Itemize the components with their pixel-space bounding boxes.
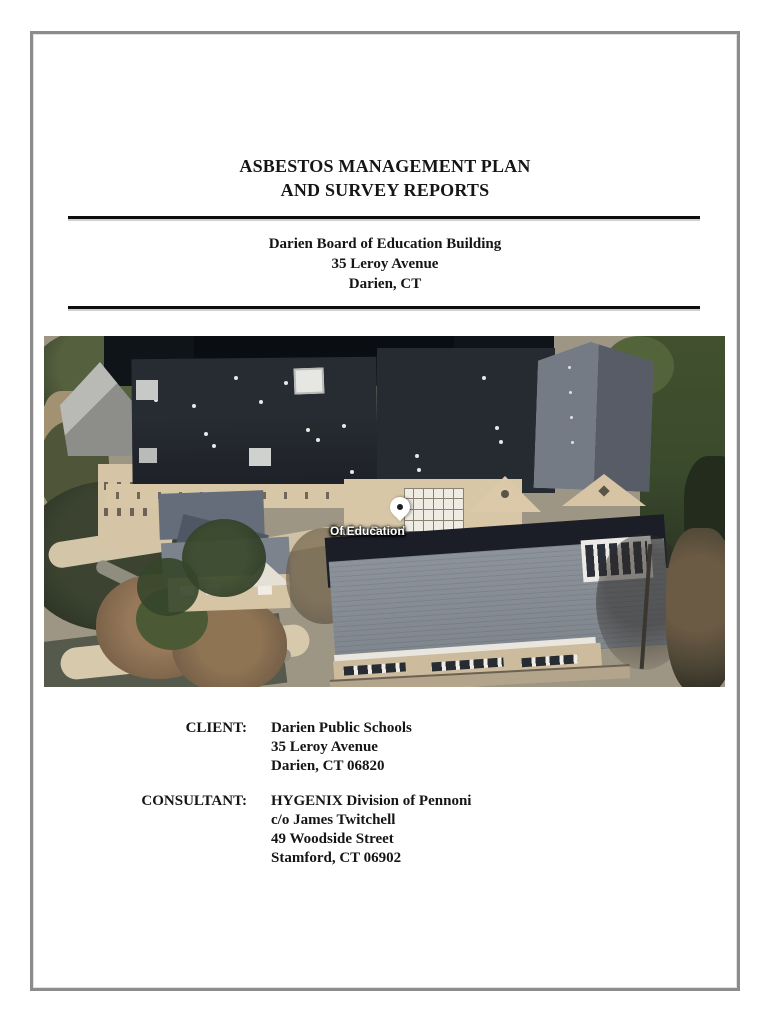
consultant-line: HYGENIX Division of Pennoni [271, 792, 471, 811]
consultant-details: HYGENIX Division of Pennoni c/o James Tw… [271, 792, 471, 868]
photo-tree-center [137, 558, 199, 616]
consultant-label: CONSULTANT: [134, 792, 247, 811]
title-line-2: AND SURVEY REPORTS [33, 178, 737, 202]
photo-gable-roof [533, 340, 654, 492]
building-city: Darien, CT [33, 274, 737, 294]
consultant-line: c/o James Twitchell [271, 811, 471, 830]
client-details: Darien Public Schools 35 Leroy Avenue Da… [271, 719, 412, 776]
client-label: CLIENT: [134, 719, 247, 738]
photo-hvac-unit [139, 448, 157, 463]
photo-hvac-unit [249, 448, 271, 466]
title-line-1: ASBESTOS MANAGEMENT PLAN [33, 154, 737, 178]
document-page: ASBESTOS MANAGEMENT PLAN AND SURVEY REPO… [30, 31, 740, 991]
horizontal-rule-bottom [68, 306, 700, 309]
building-name: Darien Board of Education Building [33, 234, 737, 254]
photo-hvac-unit [294, 367, 325, 394]
parties-block: CLIENT: Darien Public Schools 35 Leroy A… [134, 719, 471, 868]
photo-roof-dots [568, 366, 571, 369]
consultant-line: 49 Woodside Street [271, 830, 471, 849]
client-line: Darien Public Schools [271, 719, 412, 738]
horizontal-rule-top [68, 216, 700, 219]
aerial-photo: Darien Board Of Education [44, 336, 725, 687]
photo-hvac-dots [415, 454, 419, 458]
client-line: Darien, CT 06820 [271, 757, 412, 776]
map-pin-label-line-2: Of Education [330, 524, 405, 539]
building-street: 35 Leroy Avenue [33, 254, 737, 274]
photo-right-dark-roof [377, 348, 555, 493]
client-row: CLIENT: Darien Public Schools 35 Leroy A… [134, 719, 471, 776]
client-line: 35 Leroy Avenue [271, 738, 412, 757]
page-title: ASBESTOS MANAGEMENT PLAN AND SURVEY REPO… [33, 154, 737, 202]
building-address-block: Darien Board of Education Building 35 Le… [33, 234, 737, 294]
consultant-line: Stamford, CT 06902 [271, 849, 471, 868]
photo-trees-right [666, 528, 725, 687]
photo-hvac-unit [136, 380, 158, 400]
photo-main-dark-roof [131, 357, 377, 493]
consultant-row: CONSULTANT: HYGENIX Division of Pennoni … [134, 792, 471, 868]
